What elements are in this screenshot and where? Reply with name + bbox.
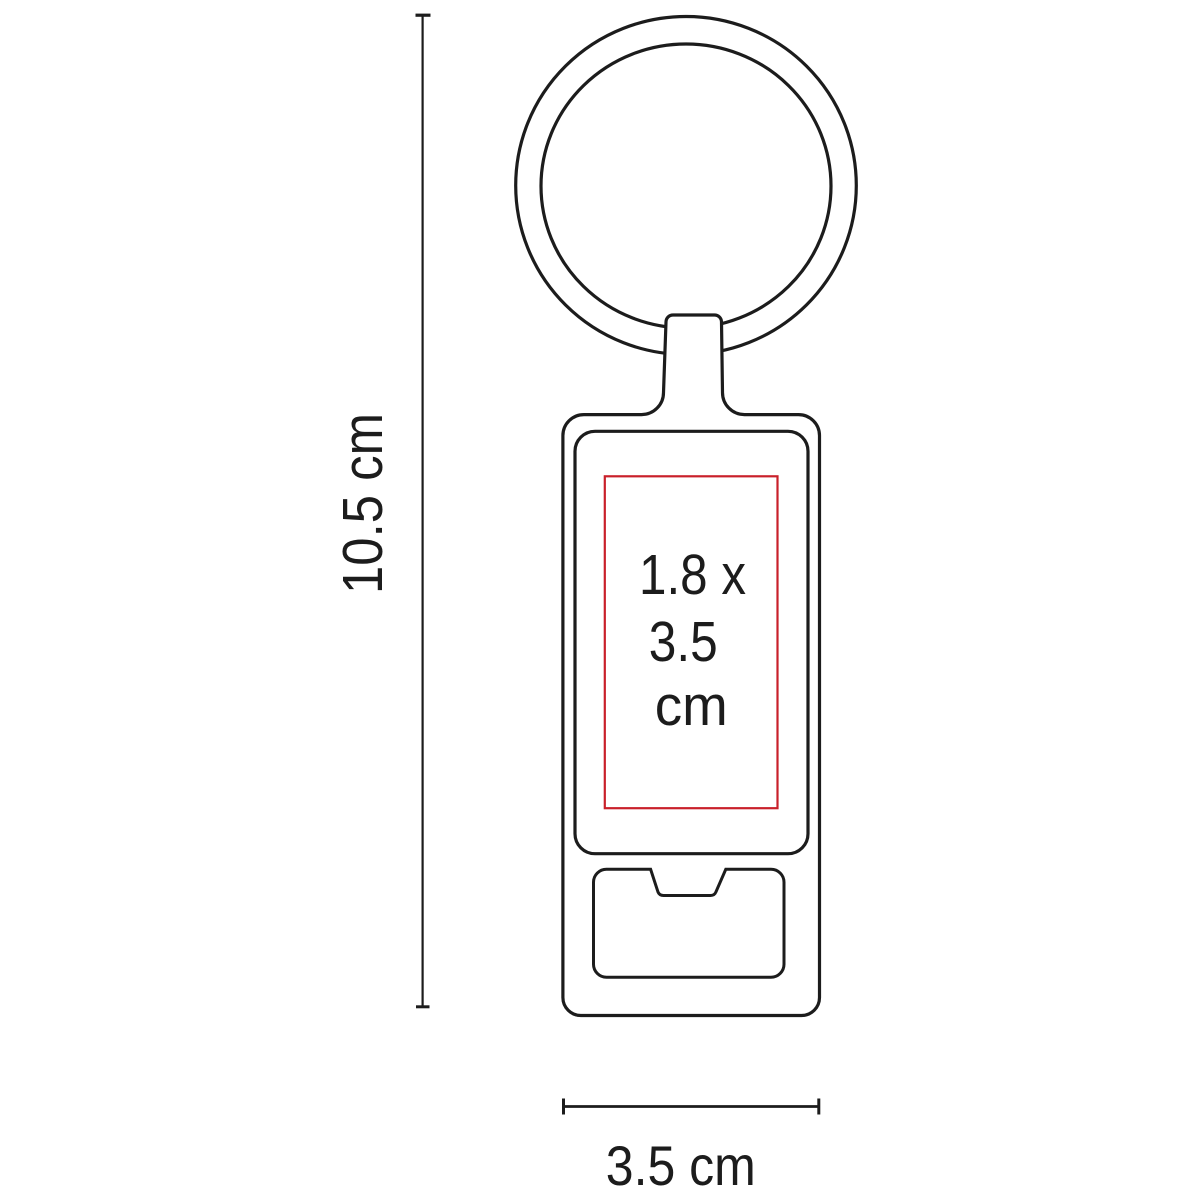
svg-text:10.5 cm: 10.5 cm (331, 413, 395, 594)
svg-text:3.5 cm: 3.5 cm (606, 1134, 756, 1197)
svg-text:1.8 x: 1.8 x (639, 543, 746, 607)
svg-text:3.5: 3.5 (649, 610, 718, 674)
svg-text:cm: cm (655, 674, 728, 738)
